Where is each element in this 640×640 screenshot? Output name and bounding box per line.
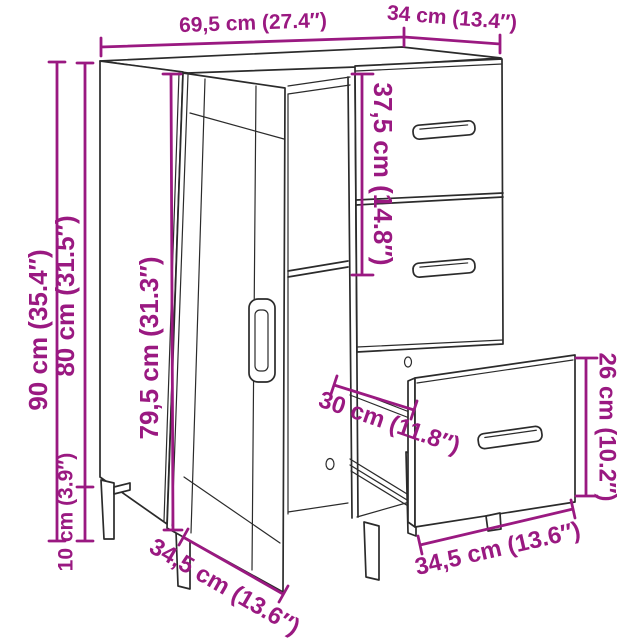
dimension-label-body-height: 80 cm (31.5″)	[50, 215, 80, 376]
open-compartment	[288, 76, 358, 518]
dimension-label-leg-height: 10 cm (3.9″)	[55, 453, 78, 572]
cabinet-door[interactable]	[167, 73, 285, 592]
leg-front-left	[101, 480, 114, 539]
cabinet-bottom-edge	[357, 501, 413, 517]
cable-hole	[326, 459, 334, 470]
dimension-leg-height: 10 cm (3.9″)	[55, 453, 93, 572]
pulled-drawer-edge-strip	[408, 378, 415, 527]
shelf	[288, 261, 348, 277]
dimension-label-drawer-section-height: 37,5 cm (14.8″)	[368, 82, 398, 265]
dimension-label-total-height: 90 cm (35.4″)	[23, 249, 53, 410]
compartment-top-edge	[288, 77, 350, 94]
dimension-label-door-height: 79,5 cm (31.3″)	[134, 256, 164, 439]
door-handle[interactable]	[249, 299, 275, 382]
diagram-page: 69,5 cm (27.4″) 34 cm (13.4″) 90 cm (35.…	[0, 0, 640, 640]
leg-center	[364, 522, 379, 580]
dimension-line	[77, 487, 93, 541]
dimension-label-drawer-front-height: 26 cm (10.2″)	[594, 353, 621, 502]
compartment-floor	[288, 503, 348, 512]
dimension-label-top-width: 69,5 cm (27.4″)	[179, 9, 328, 37]
rail-lower	[350, 459, 413, 509]
dimension-label-top-depth: 34 cm (13.4″)	[386, 1, 518, 34]
dimension-top-depth: 34 cm (13.4″)	[386, 1, 518, 53]
dimension-drawer-front-height: 26 cm (10.2″)	[576, 353, 621, 502]
furniture-dimension-diagram: 69,5 cm (27.4″) 34 cm (13.4″) 90 cm (35.…	[0, 0, 640, 640]
rail-hole-upper	[405, 357, 412, 367]
